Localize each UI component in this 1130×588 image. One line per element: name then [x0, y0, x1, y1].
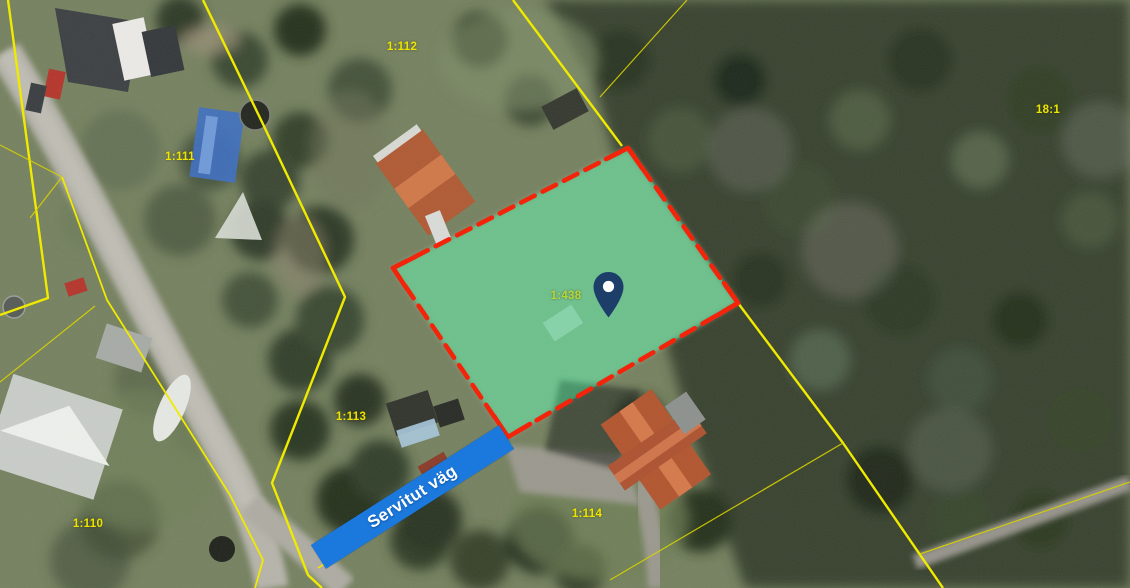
pin-body	[594, 272, 624, 318]
pin-hole	[603, 281, 614, 292]
location-pin-icon[interactable]	[592, 271, 625, 319]
parcel-label: 1:110	[73, 518, 103, 530]
parcel-label: 1:111	[165, 151, 195, 163]
parcel-label: 1:112	[387, 41, 417, 53]
parcel-label: 1:114	[572, 508, 602, 520]
map-canvas[interactable]: Servitut väg 1:1121:11118:11:4381:1131:1…	[0, 0, 1130, 588]
parcel-label: 1:113	[336, 411, 366, 423]
parcel-label: 1:438	[551, 290, 582, 302]
parcel-label: 18:1	[1036, 104, 1060, 116]
parcel-labels-layer: 1:1121:11118:11:4381:1131:1141:110	[0, 0, 1130, 588]
